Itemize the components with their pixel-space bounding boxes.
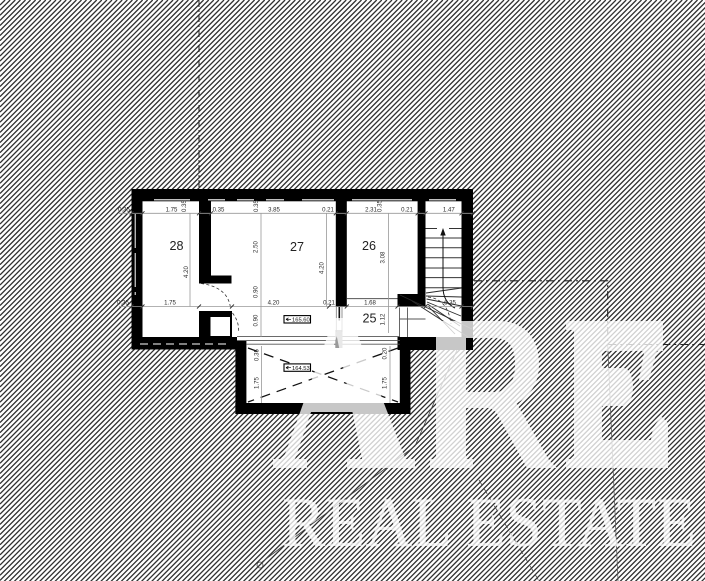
svg-text:0.35: 0.35 [377,199,384,211]
svg-text:2.50: 2.50 [253,240,260,252]
svg-text:1.75: 1.75 [164,300,176,307]
svg-text:1.75: 1.75 [254,376,261,388]
svg-text:3.85: 3.85 [268,207,280,214]
svg-text:0.90: 0.90 [253,285,260,297]
svg-text:0.20: 0.20 [382,347,389,359]
svg-text:1.47: 1.47 [443,207,455,214]
svg-text:4.20: 4.20 [268,300,280,307]
svg-text:25: 25 [362,312,376,326]
svg-text:27: 27 [290,240,304,254]
svg-text:1.12: 1.12 [380,313,387,325]
svg-text:0.35: 0.35 [181,199,188,211]
svg-text:3.08: 3.08 [380,251,387,263]
svg-text:4.20: 4.20 [183,265,190,277]
svg-text:0.21: 0.21 [322,207,334,214]
svg-text:28: 28 [169,239,183,253]
svg-text:6.35: 6.35 [444,300,456,307]
svg-text:0.90: 0.90 [253,314,260,326]
svg-text:26: 26 [362,239,376,253]
svg-text:1.68: 1.68 [364,300,376,307]
svg-text:0.35: 0.35 [253,199,260,211]
svg-text:0.21: 0.21 [323,300,335,307]
svg-text:1.75: 1.75 [382,376,389,388]
svg-text:4.20: 4.20 [319,261,326,273]
svg-text:164.53: 164.53 [292,366,310,372]
svg-text:0.35: 0.35 [254,348,261,360]
svg-text:0.35: 0.35 [117,300,129,307]
svg-text:0.35: 0.35 [118,207,130,214]
svg-text:0.35: 0.35 [213,207,225,214]
svg-text:REAL ESTATE: REAL ESTATE [282,484,696,562]
svg-text:165.60: 165.60 [292,318,310,324]
svg-text:0.21: 0.21 [401,207,413,214]
svg-text:1.75: 1.75 [166,207,178,214]
